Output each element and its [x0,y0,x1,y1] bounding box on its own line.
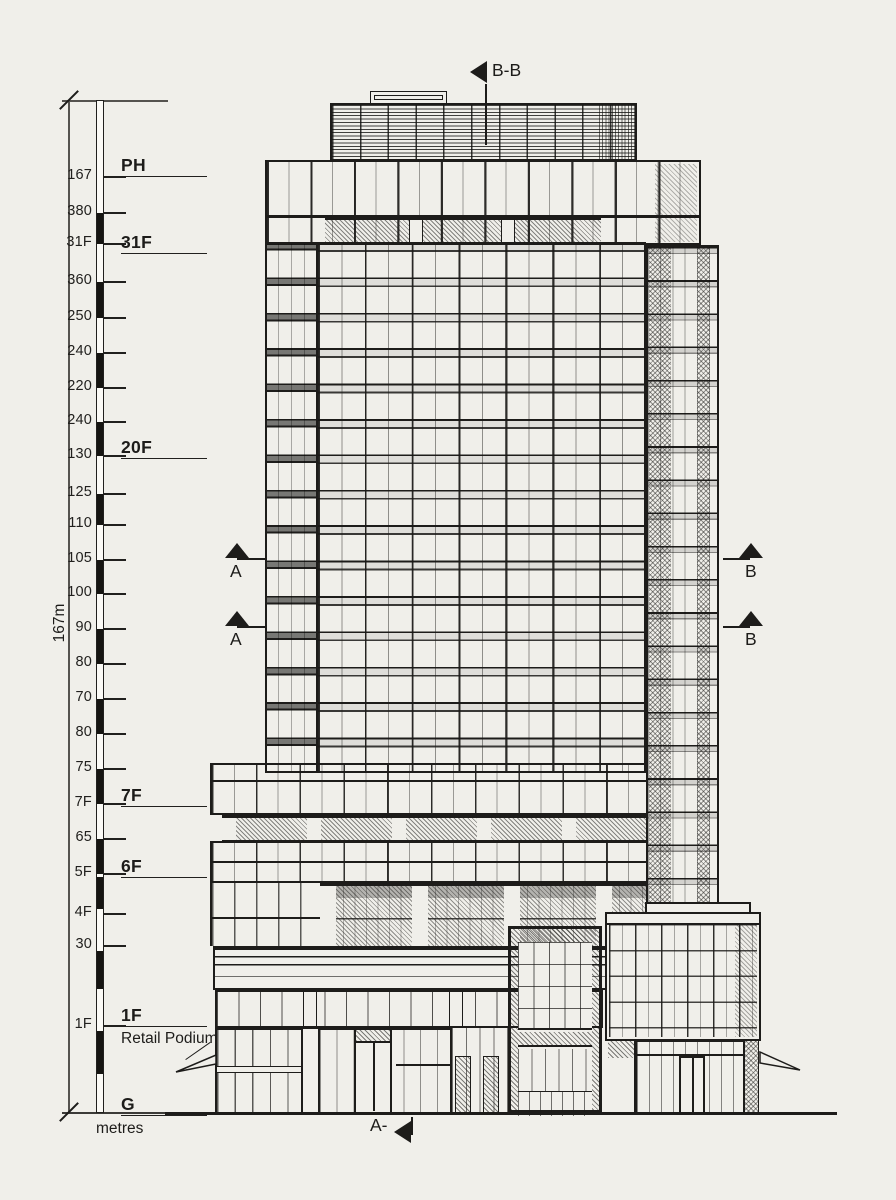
ground-line [165,1112,837,1115]
section-marker-stem [411,1117,413,1135]
section-arrow-icon [470,61,487,83]
annex-block [605,912,761,1041]
section-marker-stem [485,84,487,145]
storefront-left [215,1028,303,1114]
scale-bar-segment [97,877,103,909]
scale-tick [104,945,126,947]
section-arrow-icon [394,1121,411,1143]
section-arrow-icon [225,543,249,558]
unit-label: metres [96,1120,143,1138]
annex-pilaster [743,1040,759,1113]
mechanical-penthouse [330,103,637,161]
portal-glazing [518,942,592,1110]
floor-label: 7F [121,785,207,807]
annex-door [679,1056,705,1112]
shaded-panel [608,1040,634,1058]
scale-bar-segment [97,560,103,594]
portal-glazing-lower [518,1049,592,1091]
scale-tick-label: 65 [24,829,92,845]
scale-bar-segment [97,769,103,804]
section-marker-stem [237,626,266,628]
scale-tick-label: 105 [24,550,92,566]
scale-bar-segment [97,494,103,525]
scale-tick-label: 4F [24,904,92,920]
column [409,220,423,242]
floor-label: 20F [121,437,207,459]
scale-bar-segment [97,422,103,456]
total-height-label: 167m [51,577,69,669]
scale-tick-label: 125 [24,484,92,500]
section-marker-label: A- [370,1115,388,1136]
penthouse-louvre-panel [599,105,635,159]
scale-bar-segment [97,282,103,318]
section-marker-label: B [745,629,757,650]
scale-tick [104,212,126,214]
tower-body-outline [265,242,646,773]
scale-tick [104,317,126,319]
scale-tick [104,768,126,770]
scale-tick-label: 220 [24,378,92,394]
scale-tick [104,421,126,423]
scale-tick-label: 70 [24,689,92,705]
floor-label: 1F [121,1005,207,1027]
floor-label: 31F [121,232,207,254]
scale-tick [104,733,126,735]
scale-tick [104,281,126,283]
section-marker-stem [237,558,266,560]
section-marker-stem [723,626,750,628]
scale-tick [104,387,126,389]
floor-label: 6F [121,856,207,878]
scale-bar-segment [97,1031,103,1074]
scale-bar-segment [97,951,103,989]
scale-tick [104,352,126,354]
transom [217,1066,301,1073]
slab-line [212,861,646,863]
scale-tick [104,593,126,595]
scale-bar-segment [97,213,103,244]
door-leaf-line [373,1043,375,1111]
canopy-right [758,1046,802,1076]
scale-tick-label: 110 [24,515,92,531]
annex-base [608,1040,635,1113]
shaded-panel [455,1056,471,1114]
scale-tick-label: 130 [24,446,92,462]
shaded-panel [483,1056,499,1114]
section-marker-label: B [745,561,757,582]
shaded-panel [697,247,710,906]
shaded-panel [649,247,671,906]
storefront-mid [318,1028,452,1114]
podium-6f-band [210,841,648,883]
annex-storefront [635,1040,745,1114]
tower-recess-31f [325,217,601,243]
portal-glazing-upper [518,942,592,1030]
section-marker-label: B-B [492,60,521,81]
pier [449,992,463,1026]
scale-tick [104,524,126,526]
scale-tick-label: 240 [24,343,92,359]
scale-tick-label: 240 [24,412,92,428]
scale-tick-label: 80 [24,724,92,740]
section-marker-stem [723,558,750,560]
shaded-panel [735,924,757,1037]
section-arrow-icon [225,611,249,626]
section-arrow-icon [739,611,763,626]
section-marker-label: A [230,561,242,582]
scale-tick-label: 75 [24,759,92,775]
scale-bar [96,100,104,1113]
transom [396,1064,450,1066]
column [501,220,515,242]
scale-bar-segment [97,699,103,734]
scale-tick [104,663,126,665]
pier [303,992,317,1026]
canopy-left [174,1052,218,1078]
scale-tick [104,493,126,495]
section-arrow-icon [739,543,763,558]
scale-bar-segment [97,839,103,874]
side-wing [646,245,719,908]
transom [637,1042,743,1056]
podium-7f-band [210,763,648,815]
entrance-door [354,1030,392,1112]
dimension-cap-top [62,100,168,102]
podium-7f-recess [222,815,646,841]
elevation-sheet: 16738031F3602502402202401301251101051009… [0,0,896,1200]
scale-tick [104,559,126,561]
scale-tick-label: 1F [24,1016,92,1032]
scale-tick [104,628,126,630]
floor-label: PH [121,155,207,177]
scale-tick-label: 380 [24,203,92,219]
door-header [356,1030,390,1043]
slab-line [212,780,646,782]
scale-tick-label: 360 [24,272,92,288]
scale-tick-label: 30 [24,936,92,952]
shaded-panel [655,164,697,242]
scale-tick-label: 167 [24,167,92,183]
scale-bar-segment [97,353,103,388]
scale-tick [104,838,126,840]
portal-spandrel [518,1032,592,1047]
scale-tick-label: 7F [24,794,92,810]
storefront-pier [302,1028,319,1114]
section-marker-label: A [230,629,242,650]
scale-tick-label: 31F [24,234,92,250]
storefront-bay [452,1028,508,1114]
podium-left-grid [210,883,320,946]
scale-bar-segment [97,629,103,664]
scale-tick-label: 5F [24,864,92,880]
scale-tick-label: 250 [24,308,92,324]
scale-tick [104,913,126,915]
scale-tick [104,698,126,700]
door-leaf-line [692,1058,694,1112]
entrance-portal [508,926,602,1113]
